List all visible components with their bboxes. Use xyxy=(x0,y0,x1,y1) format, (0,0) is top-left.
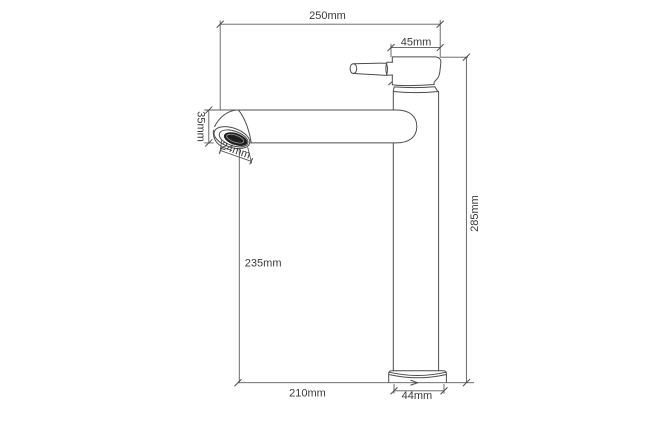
base-flange xyxy=(389,371,447,383)
spout-tip-cone xyxy=(215,110,237,127)
dimension-extension-lines xyxy=(220,20,440,110)
housing-left-tab xyxy=(389,82,392,85)
swivel-seam xyxy=(393,87,438,93)
dimension-label: 45mm xyxy=(401,36,432,48)
dimension-label: 210mm xyxy=(289,388,326,400)
dimension-spout-reach: 210mm xyxy=(235,380,474,400)
technical-drawing-page: 250mm 45mm 35mm 24mm 235mm 285mm 210 xyxy=(0,0,666,444)
handle-hub xyxy=(386,62,393,75)
dimension-label: 44mm xyxy=(402,390,433,402)
dimension-overall-height: 285mm xyxy=(441,54,481,386)
cartridge-housing xyxy=(392,57,441,86)
handle-lever xyxy=(350,62,393,75)
dimension-label: 35mm xyxy=(195,111,207,142)
dimension-head-depth: 45mm xyxy=(388,36,444,56)
handle-end-cap xyxy=(350,64,357,74)
faucet-dimension-diagram: 250mm 45mm 35mm 24mm 235mm 285mm 210 xyxy=(0,0,666,444)
spout-arm xyxy=(237,110,417,143)
dimension-label: 285mm xyxy=(469,195,481,232)
dimension-label: 250mm xyxy=(309,10,346,22)
flange-rim-arcs xyxy=(389,372,446,378)
faucet-outline xyxy=(211,57,446,383)
dimension-base-diameter: 44mm xyxy=(391,384,447,402)
dimension-overall-width: 250mm xyxy=(217,10,443,110)
handle-body xyxy=(354,63,388,75)
dimension-spout-height: 235mm xyxy=(239,151,281,383)
dimension-label: 235mm xyxy=(245,258,282,270)
